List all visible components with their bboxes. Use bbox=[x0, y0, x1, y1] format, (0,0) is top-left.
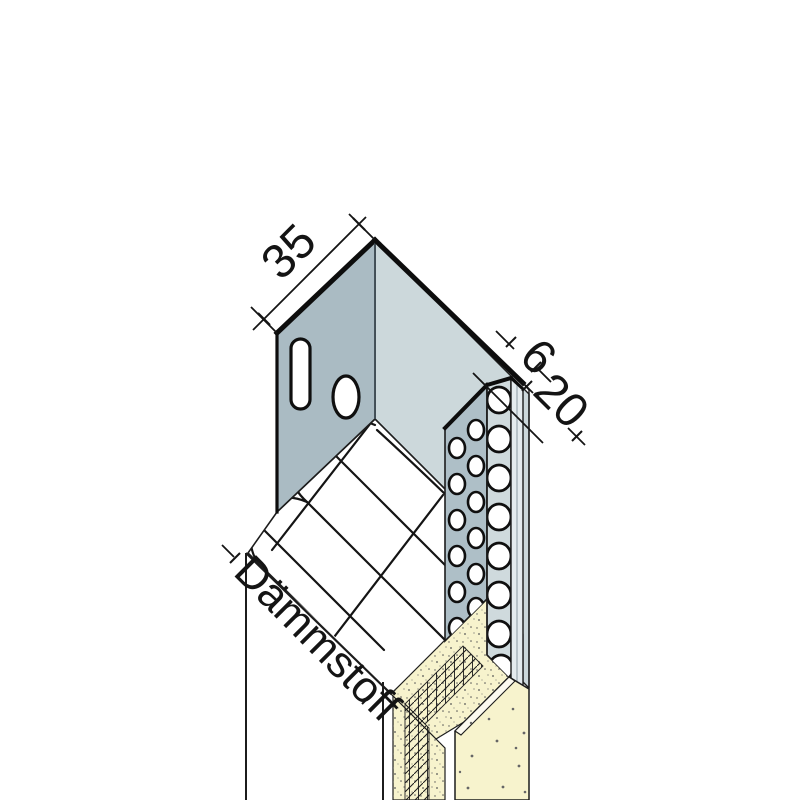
fixing-hole bbox=[333, 376, 359, 418]
daemmstoff-lead-line bbox=[222, 545, 234, 557]
fixing-slot bbox=[291, 339, 310, 409]
dim6-line-a bbox=[496, 331, 514, 349]
profile-detail-drawing: 35 6 20 Dämmstoff bbox=[0, 0, 800, 800]
dim35-label: 35 bbox=[251, 214, 326, 289]
technical-drawing-canvas: 35 6 20 Dämmstoff bbox=[0, 0, 800, 800]
